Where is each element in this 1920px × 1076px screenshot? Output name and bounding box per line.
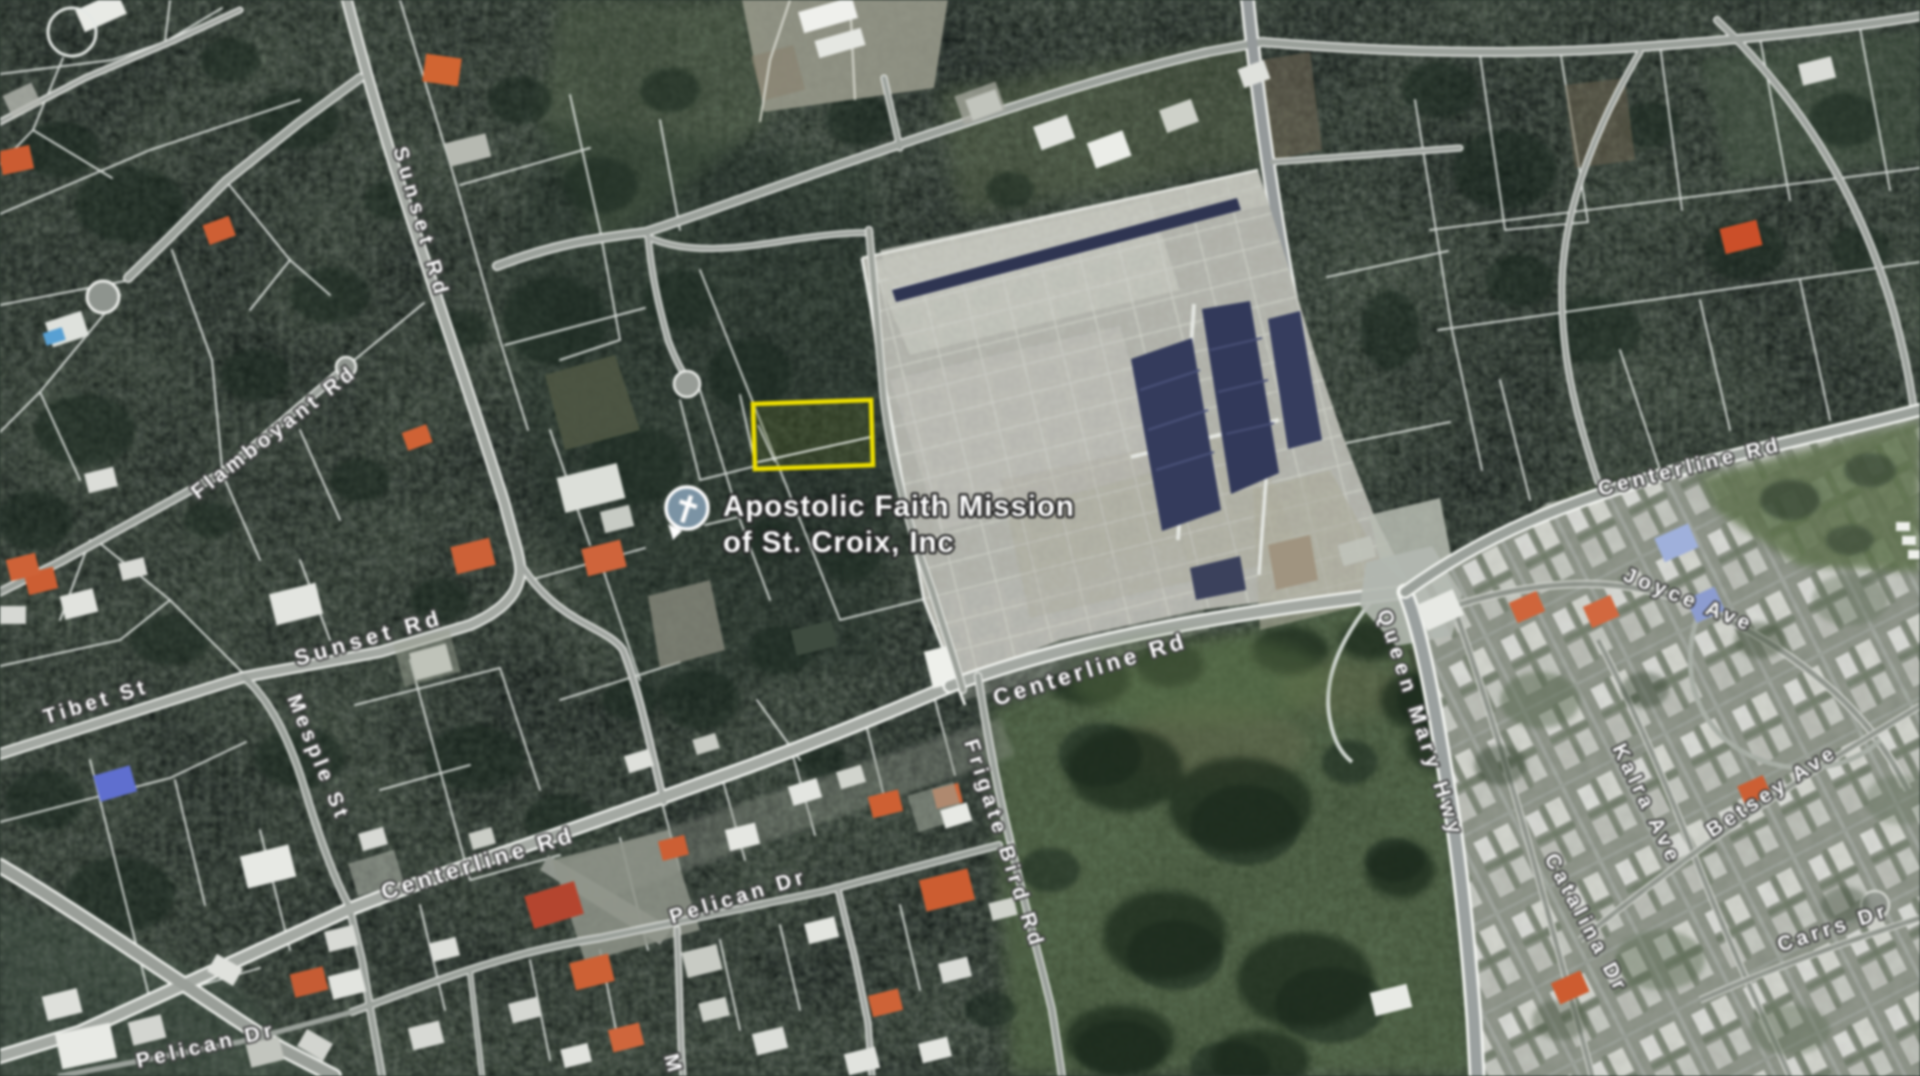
- svg-text:Apostolic Faith Mission: Apostolic Faith Mission: [723, 490, 1075, 523]
- svg-text:of St. Croix, Inc: of St. Croix, Inc: [723, 526, 955, 559]
